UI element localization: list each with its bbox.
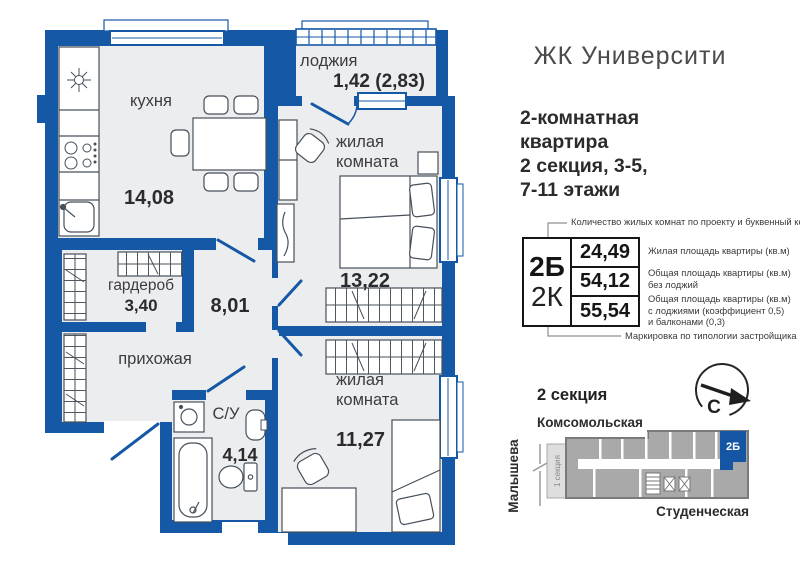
bathroom-sink-icon bbox=[246, 410, 267, 440]
subtitle-line: квартира bbox=[520, 130, 648, 154]
bedroom1-cabinet bbox=[279, 120, 297, 200]
subtitle-line: 2-комнатная bbox=[520, 106, 648, 130]
bedroom2-label-1: жилая bbox=[336, 371, 384, 389]
bedroom1-bed bbox=[340, 176, 437, 268]
label-line: Общая площадь квартиры (кв.м) bbox=[648, 293, 800, 305]
kitchen-label: кухня bbox=[130, 92, 172, 110]
bedroom1-plant-shelf bbox=[277, 204, 294, 262]
unit-code-primary: 2Б bbox=[529, 252, 565, 282]
kitchen-sink-icon bbox=[61, 202, 95, 232]
label-line: с лоджиями (коэффициент 0,5) bbox=[648, 305, 800, 317]
bathroom-label: С/У bbox=[213, 405, 241, 423]
hallway-area: 8,01 bbox=[211, 295, 250, 317]
bedroom2-wardrobe bbox=[326, 340, 442, 374]
street-left-label: Малышева bbox=[506, 439, 521, 513]
street-bottom-label: Студенческая bbox=[656, 504, 749, 519]
loggia-slab bbox=[302, 21, 428, 29]
bedroom2-area: 11,27 bbox=[336, 429, 385, 451]
bathroom-area: 4,14 bbox=[222, 445, 257, 465]
bedroom1-wardrobe bbox=[326, 288, 442, 322]
closet-strip-1 bbox=[64, 254, 86, 320]
kitchen-area: 14,08 bbox=[124, 187, 174, 209]
living-area-value: 24,49 bbox=[572, 239, 638, 268]
label-line: и балконами (0,3) bbox=[648, 316, 800, 328]
project-title: ЖК Университи bbox=[490, 42, 770, 71]
bedroom2-label-2: комната bbox=[336, 391, 399, 409]
street-top-label: Комсомольская bbox=[537, 415, 643, 430]
bathtub-icon bbox=[174, 438, 212, 522]
bedroom1-area: 13,22 bbox=[340, 270, 390, 292]
washing-machine-icon bbox=[174, 402, 204, 432]
closet-strip-2 bbox=[64, 334, 86, 422]
compass-north-label: С bbox=[707, 397, 721, 418]
legend-top-note: Количество жилых комнат по проекту и бук… bbox=[571, 216, 800, 227]
subtitle-line: 2 секция, 3-5, bbox=[520, 154, 648, 178]
compass-icon: С bbox=[685, 353, 758, 426]
wardrobe-rack bbox=[118, 252, 182, 276]
bedroom2-window-sill bbox=[457, 382, 463, 452]
total-area-with-loggia-label: Общая площадь квартиры (кв.м) с лоджиями… bbox=[648, 293, 800, 328]
legend-bottom-note: Маркировка по типологии застройщика bbox=[625, 330, 797, 341]
section1-label: 1 секция bbox=[553, 455, 562, 487]
section-title: 2 секция bbox=[537, 386, 607, 404]
street-line bbox=[533, 444, 547, 506]
unit-code-cell: 2Б 2К bbox=[524, 239, 572, 325]
wall-pier bbox=[37, 95, 45, 123]
loggia-label: лоджия bbox=[300, 52, 357, 70]
page: { "project": { "title": "ЖК Университи",… bbox=[0, 0, 800, 566]
apartment-subtitle: 2-комнатная квартира 2 секция, 3-5, 7-11… bbox=[520, 106, 648, 202]
total-area-with-loggia-value: 55,54 bbox=[572, 297, 638, 325]
unit-code-secondary: 2К bbox=[531, 282, 563, 312]
bedroom1-label-2: комната bbox=[336, 153, 399, 171]
label-line: Общая площадь квартиры (кв.м) bbox=[648, 267, 800, 279]
wardrobe-area: 3,40 bbox=[124, 296, 157, 315]
bedroom1-label-1: жилая bbox=[336, 133, 384, 151]
loggia-area: 1,42 (2,83) bbox=[333, 71, 425, 92]
bedroom1-window-sill bbox=[457, 184, 463, 256]
living-area-label: Жилая площадь квартиры (кв.м) bbox=[648, 245, 800, 257]
bedroom2-bed bbox=[392, 420, 440, 532]
wardrobe-label: гардероб bbox=[108, 277, 174, 294]
kitchen-window-sill bbox=[104, 20, 228, 31]
unit-highlight-label: 2Б bbox=[726, 441, 740, 453]
entry-label: прихожая bbox=[118, 350, 192, 368]
subtitle-line: 7-11 этажи bbox=[520, 178, 648, 202]
total-area-label: Общая площадь квартиры (кв.м) без лоджий bbox=[648, 267, 800, 290]
total-area-value: 54,12 bbox=[572, 268, 638, 297]
label-line: без лоджий bbox=[648, 279, 800, 291]
section-map: 2 секция Комсомольская Студенческая Малы… bbox=[506, 353, 759, 519]
spec-table: 2Б 2К 24,49 54,12 55,54 bbox=[522, 237, 640, 327]
bedroom2-desk bbox=[282, 488, 356, 532]
bedroom1-nightstand bbox=[418, 152, 438, 174]
label-line: Жилая площадь квартиры (кв.м) bbox=[648, 245, 800, 257]
floorplan: кухня 14,08 лоджия 1,42 (2,83) жилая ком… bbox=[37, 20, 463, 545]
